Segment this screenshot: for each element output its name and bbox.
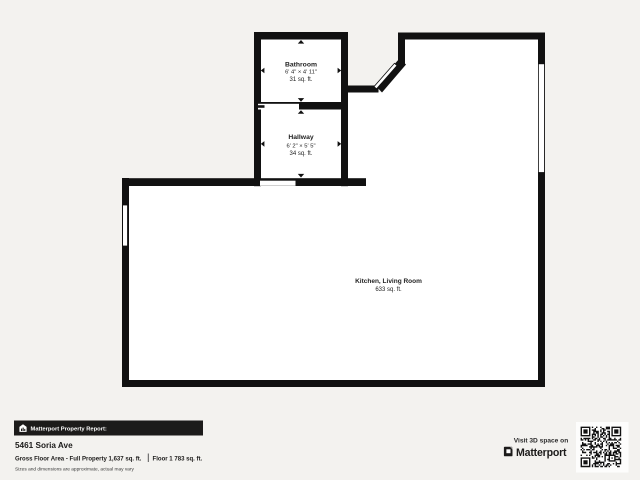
svg-text:Visit 3D space on: Visit 3D space on [514,438,568,445]
svg-text:34 sq. ft.: 34 sq. ft. [289,151,312,157]
svg-text:6' 4" × 4' 11": 6' 4" × 4' 11" [285,70,317,76]
svg-text:Kitchen, Living Room: Kitchen, Living Room [355,278,422,285]
svg-text:Matterport: Matterport [516,447,567,459]
svg-text:633 sq. ft.: 633 sq. ft. [375,287,402,293]
svg-text:Gross Floor Area - Full Proper: Gross Floor Area - Full Property 1,637 s… [15,456,142,462]
svg-text:31 sq. ft.: 31 sq. ft. [289,77,312,83]
svg-text:Bathroom: Bathroom [285,61,317,68]
svg-text:5461 Soria Ave: 5461 Soria Ave [15,441,73,450]
svg-text:Matterport Property Report:: Matterport Property Report: [31,426,107,432]
svg-text:Sizes and dimensions are appro: Sizes and dimensions are approximate, ac… [15,467,135,473]
svg-text:Hallway: Hallway [288,134,314,141]
svg-text:6' 2" × 5' 5": 6' 2" × 5' 5" [286,144,315,150]
svg-text:Floor 1 783 sq. ft.: Floor 1 783 sq. ft. [153,456,203,462]
